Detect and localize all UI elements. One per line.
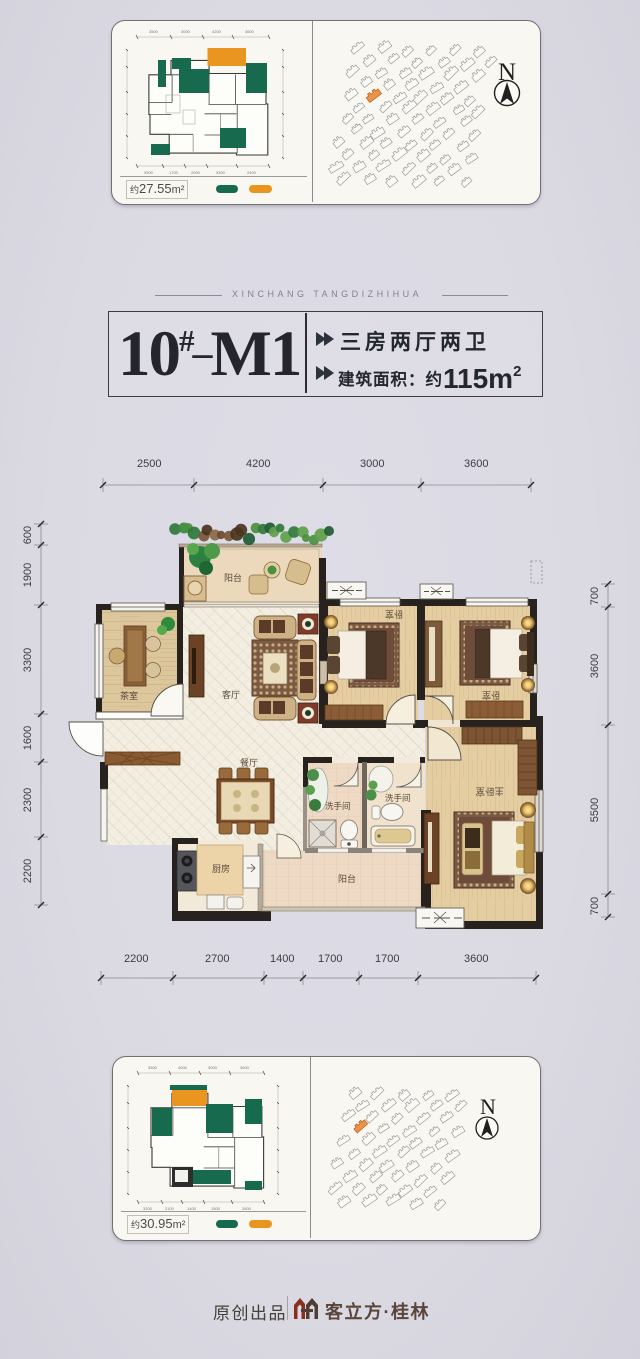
svg-text:3300: 3300: [22, 648, 34, 672]
svg-text:1700: 1700: [318, 953, 342, 965]
svg-text:3000: 3000: [181, 29, 191, 34]
svg-text:1900: 1900: [22, 563, 34, 587]
svg-text:2000: 2000: [191, 170, 201, 175]
svg-text:餐厅: 餐厅: [240, 757, 258, 768]
svg-text:1400: 1400: [270, 953, 294, 965]
svg-text:洗手间: 洗手间: [325, 801, 351, 811]
svg-text:3500: 3500: [148, 1065, 158, 1070]
svg-text:卧室: 卧室: [385, 609, 403, 620]
svg-text:N: N: [480, 1094, 496, 1119]
svg-text:700: 700: [589, 897, 601, 915]
svg-text:3600: 3600: [240, 1065, 250, 1070]
svg-text:2500: 2500: [137, 458, 161, 470]
svg-text:阳台: 阳台: [338, 873, 356, 884]
svg-text:2200: 2200: [124, 953, 148, 965]
svg-text:3600: 3600: [464, 953, 488, 965]
svg-text:4200: 4200: [212, 29, 222, 34]
svg-text:700: 700: [589, 587, 601, 605]
svg-text:3000: 3000: [208, 1065, 218, 1070]
svg-text:600: 600: [22, 526, 34, 544]
svg-text:4000: 4000: [178, 1065, 188, 1070]
svg-text:3600: 3600: [245, 29, 255, 34]
svg-text:2300: 2300: [22, 788, 34, 812]
svg-text:3500: 3500: [149, 29, 159, 34]
svg-text:1700: 1700: [375, 953, 399, 965]
svg-text:3600: 3600: [464, 458, 488, 470]
svg-text:2200: 2200: [22, 859, 34, 883]
svg-text:3000: 3000: [360, 458, 384, 470]
svg-text:厨房: 厨房: [212, 863, 230, 874]
svg-text:主卧室: 主卧室: [475, 785, 504, 797]
svg-text:3300: 3300: [216, 170, 226, 175]
svg-text:2700: 2700: [205, 953, 229, 965]
svg-text:1600: 1600: [22, 726, 34, 750]
svg-text:1700: 1700: [169, 170, 179, 175]
svg-text:洗手间: 洗手间: [385, 793, 411, 803]
svg-text:茶室: 茶室: [120, 690, 138, 701]
svg-text:阳台: 阳台: [224, 572, 242, 583]
svg-text:5500: 5500: [589, 798, 601, 822]
svg-text:卧室: 卧室: [482, 690, 500, 701]
svg-text:2400: 2400: [247, 170, 257, 175]
svg-text:3500: 3500: [144, 170, 154, 175]
svg-text:3600: 3600: [589, 654, 601, 678]
svg-text:4200: 4200: [246, 458, 270, 470]
svg-text:客厅: 客厅: [222, 689, 240, 700]
